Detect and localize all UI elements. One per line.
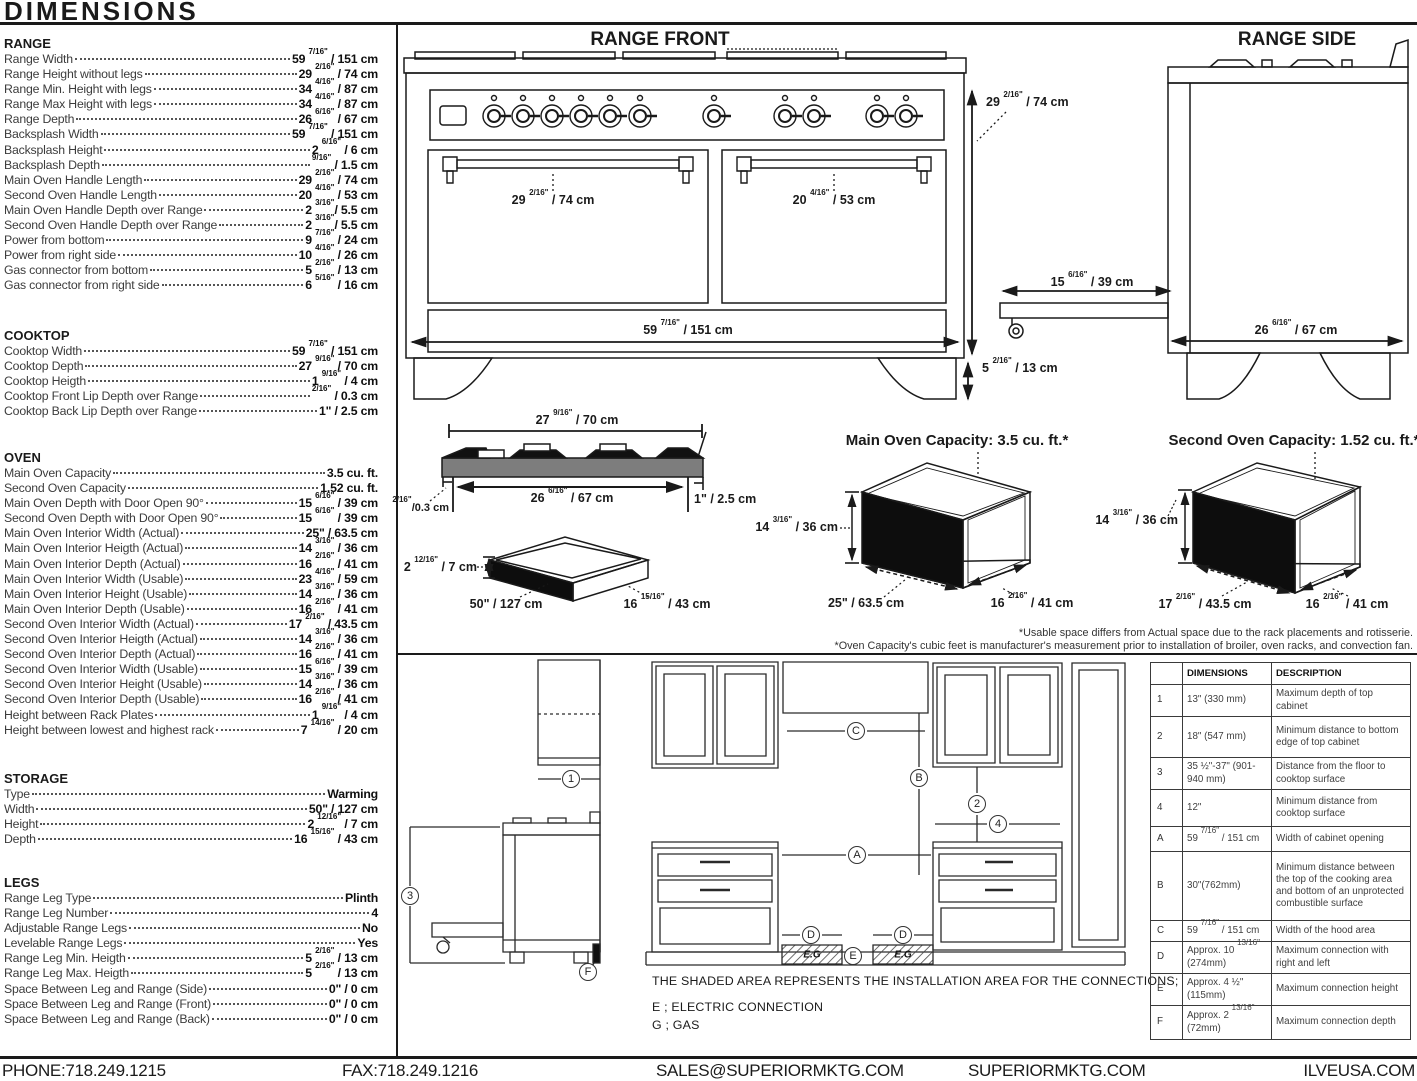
dim-storage-width: 50" / 127 cm: [470, 598, 543, 611]
footer-fax: FAX:718.249.1216: [342, 1061, 478, 1081]
footer-website: SUPERIORMKTG.COM: [968, 1061, 1146, 1081]
electric-connection-note: E ; ELECTRIC CONNECTION: [652, 1000, 823, 1014]
dim-main-oven-height: 14 3/16" / 36 cm: [755, 521, 838, 534]
shaded-area-note: THE SHADED AREA REPRESENTS THE INSTALLAT…: [652, 974, 1179, 988]
dotted-leader: [199, 410, 317, 412]
spec-label: Range Leg Min. Heigth: [4, 951, 126, 965]
second-oven-capacity-title: Second Oven Capacity: 1.52 cu. ft.*: [1169, 432, 1417, 449]
dim-second-oven-depth: 16 2/16" / 41 cm: [1306, 598, 1389, 611]
marker-A: A: [848, 846, 866, 864]
spec-section-title: OVEN: [4, 450, 378, 465]
note-usable-space: *Usable space differs from Actual space …: [1019, 627, 1413, 639]
table-row: DApprox. 10 13/16" (274mm)Maximum connec…: [1151, 942, 1411, 974]
spec-value: 15 6/16" / 39 cm: [299, 511, 378, 525]
spec-value: 0" / 0 cm: [329, 997, 378, 1011]
table-header-cell: DIMENSIONS: [1183, 663, 1272, 685]
spec-value: 34 4/16" / 87 cm: [299, 97, 378, 111]
spec-row: Gas connector from right side6 5/16" / 1…: [4, 278, 378, 293]
table-row: FApprox. 2 13/16" (72mm)Maximum connecti…: [1151, 1006, 1411, 1040]
dotted-leader: [131, 972, 303, 974]
table-desc-cell: Distance from the floor to cooktop surfa…: [1272, 758, 1411, 790]
spec-label: Second Oven Interior Depth (Usable): [4, 692, 199, 706]
marker-F: F: [579, 963, 597, 981]
spec-label: Main Oven Interior Depth (Actual): [4, 557, 181, 571]
spec-label: Main Oven Depth with Door Open 90°: [4, 496, 204, 510]
dotted-leader: [219, 224, 303, 226]
spec-label: Height between Rack Plates: [4, 708, 153, 722]
spec-label: Gas connector from bottom: [4, 263, 148, 277]
spec-value: 15 6/16" / 39 cm: [299, 496, 378, 510]
second-oven-capacity-drawing: [1168, 452, 1360, 596]
footer-brand: ILVEUSA.COM: [1303, 1061, 1415, 1081]
spec-row: Main Oven Capacity3.5 cu. ft.: [4, 466, 378, 481]
dim-main-handle: 29 2/16" / 74 cm: [512, 194, 595, 207]
spec-label: Main Oven Interior Depth (Usable): [4, 602, 185, 616]
dim-cooktop-depth: 27 9/16" / 70 cm: [536, 414, 619, 427]
dotted-leader: [40, 823, 305, 825]
spec-value: 34 4/16" / 87 cm: [299, 82, 378, 96]
spec-label: Power from right side: [4, 248, 116, 262]
spec-value: 23 4/16" / 59 cm: [299, 572, 378, 586]
spec-row: Cooktop Front Lip Depth over Range2/16" …: [4, 389, 378, 404]
dim-main-oven-width: 25" / 63.5 cm: [828, 597, 904, 610]
spec-section-cooktop: COOKTOPCooktop Width59 7/16" / 151 cmCoo…: [4, 328, 378, 419]
dotted-leader: [185, 578, 296, 580]
spec-value: 14 3/16" / 36 cm: [299, 632, 378, 646]
table-id-cell: 1: [1151, 685, 1183, 717]
spec-row: Range Leg TypePlinth: [4, 891, 378, 906]
spec-label: Cooktop Back Lip Depth over Range: [4, 404, 197, 418]
dotted-leader: [181, 532, 304, 534]
spec-label: Gas connector from right side: [4, 278, 160, 292]
dotted-leader: [187, 608, 297, 610]
spec-label: Power from bottom: [4, 233, 104, 247]
marker-4: 4: [989, 815, 1007, 833]
storage-drawer-drawing: [477, 537, 648, 601]
spec-row: Space Between Leg and Range (Side)0" / 0…: [4, 982, 378, 997]
spec-value: Plinth: [345, 891, 378, 905]
dotted-leader: [154, 88, 297, 90]
table-dims-cell: 59 7/16" / 151 cm: [1183, 827, 1272, 852]
table-id-cell: C: [1151, 921, 1183, 942]
spec-label: Range Height without legs: [4, 67, 143, 81]
dotted-leader: [206, 502, 297, 504]
spec-label: Adjustable Range Legs: [4, 921, 127, 935]
spec-row: Height between lowest and highest rack7 …: [4, 723, 378, 738]
table-row: EApprox. 4 ½" (115mm)Maximum connection …: [1151, 974, 1411, 1006]
range-side-title: RANGE SIDE: [1238, 29, 1356, 51]
dotted-leader: [102, 164, 310, 166]
marker-E: E: [844, 947, 862, 965]
dim-second-oven-height: 14 3/16" / 36 cm: [1095, 514, 1178, 527]
spec-value: 14 3/16" / 36 cm: [299, 677, 378, 691]
spec-label: Space Between Leg and Range (Front): [4, 997, 211, 1011]
burner-knobs: [483, 96, 923, 128]
spec-value: 5 2/16" / 13 cm: [305, 966, 378, 980]
table-header-row: DIMENSIONSDESCRIPTION: [1151, 663, 1411, 685]
gas-connection-note: G ; GAS: [652, 1018, 700, 1032]
spec-value: 59 7/16" / 151 cm: [292, 344, 378, 358]
note-oven-capacity: *Oven Capacity's cubic feet is manufactu…: [835, 640, 1413, 652]
dim-range-width: 59 7/16" / 151 cm: [643, 324, 733, 337]
table-dims-cell: 12": [1183, 790, 1272, 827]
table-desc-cell: Maximum connection depth: [1272, 1006, 1411, 1040]
spec-value: 29 2/16" / 74 cm: [299, 173, 378, 187]
marker-D-left: D: [802, 926, 820, 944]
spec-label: Second Oven Handle Depth over Range: [4, 218, 217, 232]
spec-row: Adjustable Range LegsNo: [4, 921, 378, 936]
spec-section-oven: OVENMain Oven Capacity3.5 cu. ft.Second …: [4, 450, 378, 738]
spec-value: 14 3/16" / 36 cm: [299, 587, 378, 601]
table-row: A59 7/16" / 151 cmWidth of cabinet openi…: [1151, 827, 1411, 852]
dim-main-oven-depth: 16 2/16" / 41 cm: [991, 597, 1074, 610]
table-row: 113" (330 mm)Maximum depth of top cabine…: [1151, 685, 1411, 717]
marker-3: 3: [401, 887, 419, 905]
dotted-leader: [36, 808, 306, 810]
dim-back-lip: 1" / 2.5 cm: [694, 493, 756, 506]
dotted-leader: [200, 395, 310, 397]
spec-label: Main Oven Interior Width (Actual): [4, 526, 179, 540]
spec-label: Type: [4, 787, 30, 801]
table-desc-cell: Minimum distance from cooktop surface: [1272, 790, 1411, 827]
table-desc-cell: Width of the hood area: [1272, 921, 1411, 942]
dotted-leader: [106, 239, 303, 241]
dotted-leader: [216, 729, 299, 731]
spec-value: 15 6/16" / 39 cm: [299, 662, 378, 676]
spec-label: Second Oven Interior Width (Usable): [4, 662, 198, 676]
table-id-cell: 3: [1151, 758, 1183, 790]
spec-label: Range Leg Number: [4, 906, 108, 920]
table-dims-cell: Approx. 10 13/16" (274mm): [1183, 942, 1272, 974]
range-side-drawing: [1000, 40, 1408, 399]
spec-label: Main Oven Interior Width (Usable): [4, 572, 183, 586]
spec-label: Second Oven Depth with Door Open 90°: [4, 511, 218, 525]
table-id-cell: 4: [1151, 790, 1183, 827]
table-desc-cell: Width of cabinet opening: [1272, 827, 1411, 852]
footer-phone: PHONE:718.249.1215: [2, 1061, 166, 1081]
dim-storage-depth: 16 15/16" / 43 cm: [623, 598, 710, 611]
dotted-leader: [113, 472, 325, 474]
spec-value: 16 2/16" / 41 cm: [299, 557, 378, 571]
spec-label: Levelable Range Legs: [4, 936, 122, 950]
dotted-leader: [155, 714, 310, 716]
front-left-leg: [414, 358, 492, 399]
spec-label: Main Oven Capacity: [4, 466, 111, 480]
range-front-title: RANGE FRONT: [590, 29, 729, 51]
spec-column: RANGERange Width59 7/16" / 151 cmRange H…: [4, 25, 378, 1055]
range-front-drawing: [404, 49, 1006, 399]
spec-row: TypeWarming: [4, 787, 378, 802]
spec-label: Cooktop Depth: [4, 359, 83, 373]
dotted-leader: [183, 563, 297, 565]
table-desc-cell: Minimum distance between the top of the …: [1272, 852, 1411, 921]
spec-section-legs: LEGSRange Leg TypePlinthRange Leg Number…: [4, 875, 378, 1027]
spec-value: 0" / 0 cm: [329, 982, 378, 996]
spec-label: Main Oven Handle Length: [4, 173, 142, 187]
dotted-leader: [38, 838, 292, 840]
dim-cooktop-inner: 26 6/16" / 67 cm: [531, 492, 614, 505]
table-id-cell: A: [1151, 827, 1183, 852]
dotted-leader: [76, 118, 296, 120]
install-front-view: [646, 662, 1125, 965]
dotted-leader: [204, 683, 297, 685]
dotted-leader: [129, 927, 360, 929]
dotted-leader: [145, 73, 297, 75]
spec-value: 6 5/16" / 16 cm: [305, 278, 378, 292]
dotted-leader: [75, 58, 290, 60]
spec-label: Main Oven Interior Heigth (Actual): [4, 541, 183, 555]
spec-value: 4: [371, 906, 378, 920]
spec-value: 10 4/16" / 26 cm: [299, 248, 378, 262]
table-id-cell: 2: [1151, 717, 1183, 758]
dotted-leader: [144, 179, 296, 181]
dotted-leader: [124, 942, 355, 944]
front-right-leg: [878, 358, 956, 399]
spec-value: 29 2/16" / 74 cm: [299, 67, 378, 81]
spec-value: 2/16" / 0.3 cm: [312, 389, 378, 403]
spec-value: 59 7/16" / 151 cm: [292, 52, 378, 66]
dim-range-height: 29 2/16" / 74 cm: [986, 96, 1069, 109]
top-drawings: [396, 25, 1417, 655]
table-row: 335 ½"-37" (901-940 mm)Distance from the…: [1151, 758, 1411, 790]
table-header-cell: [1151, 663, 1183, 685]
spec-row: Range Leg Number4: [4, 906, 378, 921]
table-desc-cell: Maximum connection with right and left: [1272, 942, 1411, 974]
spec-value: 1" / 2.5 cm: [319, 404, 378, 418]
table-id-cell: B: [1151, 852, 1183, 921]
spec-value: 16 2/16" / 41 cm: [299, 647, 378, 661]
dim-leg-height: 5 2/16" / 13 cm: [982, 362, 1058, 375]
dotted-leader: [128, 957, 304, 959]
spec-value: 14 3/16" / 36 cm: [299, 541, 378, 555]
main-oven-capacity-drawing: [840, 452, 1030, 597]
storage-drawer-open: [1000, 303, 1168, 318]
spec-label: Height between lowest and highest rack: [4, 723, 214, 737]
dotted-leader: [212, 1018, 327, 1020]
spec-label: Width: [4, 802, 34, 816]
table-desc-cell: Minimum distance to bottom edge of top c…: [1272, 717, 1411, 758]
dimensions-table: DIMENSIONSDESCRIPTION113" (330 mm)Maximu…: [1150, 662, 1411, 1040]
table-desc-cell: Maximum depth of top cabinet: [1272, 685, 1411, 717]
spec-value: Yes: [357, 936, 378, 950]
spec-label: Backsplash Depth: [4, 158, 100, 172]
spec-label: Second Oven Handle Length: [4, 188, 157, 202]
eg-label-right: E.G: [894, 950, 911, 961]
spec-label: Second Oven Interior Depth (Actual): [4, 647, 195, 661]
spec-row: Cooktop Back Lip Depth over Range1" / 2.…: [4, 404, 378, 419]
spec-value: 20 4/16" / 53 cm: [299, 188, 378, 202]
spec-label: Second Oven Capacity: [4, 481, 126, 495]
dotted-leader: [104, 149, 309, 151]
main-oven-capacity-title: Main Oven Capacity: 3.5 cu. ft.*: [846, 432, 1069, 449]
table-row: 218" (547 mm)Minimum distance to bottom …: [1151, 717, 1411, 758]
spec-label: Second Oven Interior Height (Usable): [4, 677, 202, 691]
table-dims-cell: 35 ½"-37" (901-940 mm): [1183, 758, 1272, 790]
install-side-view: [410, 660, 600, 968]
dotted-leader: [201, 698, 296, 700]
spec-label: Height: [4, 817, 38, 831]
spec-label: Second Oven Interior Width (Actual): [4, 617, 194, 631]
table-desc-cell: Maximum connection height: [1272, 974, 1411, 1006]
spec-label: Range Min. Height with legs: [4, 82, 152, 96]
spec-label: Backsplash Height: [4, 143, 102, 157]
spec-section-title: STORAGE: [4, 771, 378, 786]
spec-label: Range Width: [4, 52, 73, 66]
table-dims-cell: 30"(762mm): [1183, 852, 1272, 921]
spec-section-storage: STORAGETypeWarmingWidth50" / 127 cmHeigh…: [4, 771, 378, 847]
table-id-cell: E: [1151, 974, 1183, 1006]
marker-D-right: D: [894, 926, 912, 944]
dim-front-lip: 2/16"/0.3 cm: [392, 503, 449, 515]
dotted-leader: [101, 133, 290, 135]
dim-second-oven-width: 17 2/16" / 43.5 cm: [1158, 598, 1251, 611]
spec-row: Range Leg Max. Heigth5 2/16" / 13 cm: [4, 966, 378, 981]
dotted-leader: [32, 793, 325, 795]
spec-label: Main Oven Handle Depth over Range: [4, 203, 202, 217]
footer-email: SALES@SUPERIORMKTG.COM: [656, 1061, 904, 1081]
spec-label: Cooktop Width: [4, 344, 82, 358]
dotted-leader: [197, 653, 296, 655]
spec-label: Backsplash Width: [4, 127, 99, 141]
table-header-cell: DESCRIPTION: [1272, 663, 1411, 685]
oven-handles: [443, 157, 931, 183]
spec-value: Warming: [327, 787, 378, 801]
table-dims-cell: Approx. 2 13/16" (72mm): [1183, 1006, 1272, 1040]
dotted-leader: [84, 350, 290, 352]
dotted-leader: [200, 668, 297, 670]
spec-label: Second Oven Interior Heigth (Actual): [4, 632, 198, 646]
dim-range-depth: 26 6/16" / 67 cm: [1255, 324, 1338, 337]
marker-B: B: [910, 769, 928, 787]
dotted-leader: [189, 593, 296, 595]
spec-label: Space Between Leg and Range (Back): [4, 1012, 210, 1026]
dotted-leader: [128, 487, 318, 489]
spec-label: Cooktop Heigth: [4, 374, 86, 388]
spec-label: Range Leg Type: [4, 891, 91, 905]
dotted-leader: [93, 897, 343, 899]
spec-row: Space Between Leg and Range (Back)0" / 0…: [4, 1012, 378, 1027]
marker-C: C: [847, 722, 865, 740]
dotted-leader: [162, 284, 304, 286]
dotted-leader: [154, 103, 297, 105]
marker-1: 1: [562, 770, 580, 788]
dotted-leader: [159, 194, 297, 196]
dim-storage-height: 2 12/16" / 7 cm: [404, 561, 477, 574]
dotted-leader: [110, 912, 369, 914]
dotted-leader: [85, 365, 296, 367]
dim-second-handle: 20 4/16" / 53 cm: [793, 194, 876, 207]
dim-drawer-extension: 15 6/16" / 39 cm: [1051, 276, 1134, 289]
table-id-cell: D: [1151, 942, 1183, 974]
marker-2: 2: [968, 795, 986, 813]
spec-row: Space Between Leg and Range (Front)0" / …: [4, 997, 378, 1012]
table-dims-cell: Approx. 4 ½" (115mm): [1183, 974, 1272, 1006]
dotted-leader: [150, 269, 303, 271]
dotted-leader: [220, 517, 296, 519]
table-row: 412"Minimum distance from cooktop surfac…: [1151, 790, 1411, 827]
spec-value: No: [362, 921, 378, 935]
table-row: C59 7/16" / 151 cmWidth of the hood area: [1151, 921, 1411, 942]
spec-label: Range Depth: [4, 112, 74, 126]
dotted-leader: [213, 1003, 327, 1005]
dotted-leader: [200, 638, 297, 640]
spec-row: Depth16 15/16" / 43 cm: [4, 832, 378, 847]
dotted-leader: [209, 988, 327, 990]
dotted-leader: [196, 623, 287, 625]
dotted-leader: [204, 209, 303, 211]
spec-label: Cooktop Front Lip Depth over Range: [4, 389, 198, 403]
spec-label: Range Leg Max. Heigth: [4, 966, 129, 980]
eg-label-left: E.G: [803, 950, 820, 961]
dotted-leader: [185, 547, 296, 549]
spec-value: 0" / 0 cm: [329, 1012, 378, 1026]
backsplash-profile: [1390, 40, 1408, 67]
dotted-leader: [88, 380, 310, 382]
spec-value: 3.5 cu. ft.: [327, 466, 378, 480]
spec-value: 16 15/16" / 43 cm: [294, 832, 378, 846]
dotted-leader: [118, 254, 297, 256]
spec-label: Range Max Height with legs: [4, 97, 152, 111]
table-id-cell: F: [1151, 1006, 1183, 1040]
table-dims-cell: 18" (547 mm): [1183, 717, 1272, 758]
spec-label: Space Between Leg and Range (Side): [4, 982, 207, 996]
spec-label: Main Oven Interior Height (Usable): [4, 587, 187, 601]
spec-label: Depth: [4, 832, 36, 846]
spec-value: 7 14/16" / 20 cm: [301, 723, 378, 737]
spec-section-title: LEGS: [4, 875, 378, 890]
table-dims-cell: 13" (330 mm): [1183, 685, 1272, 717]
spec-section-range: RANGERange Width59 7/16" / 151 cmRange H…: [4, 36, 378, 294]
spec-row: Second Oven Depth with Door Open 90°15 6…: [4, 511, 378, 526]
table-row: B30"(762mm)Minimum distance between the …: [1151, 852, 1411, 921]
